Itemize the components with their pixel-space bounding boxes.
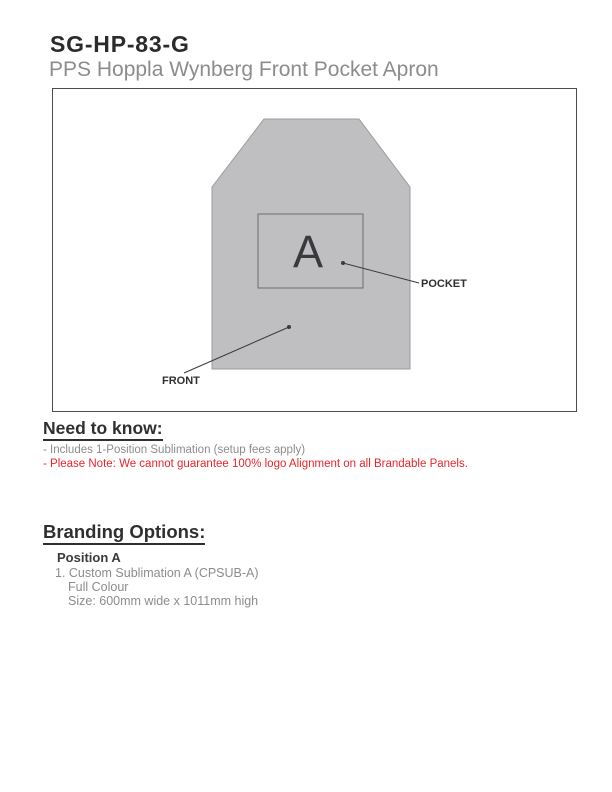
position-a-marker: A xyxy=(293,226,323,277)
need-to-know-item: - Includes 1-Position Sublimation (setup… xyxy=(43,444,468,458)
branding-colour-line: Full Colour xyxy=(68,580,259,594)
branding-options-heading: Branding Options: xyxy=(43,523,205,545)
product-diagram-panel: A POCKET FRONT xyxy=(52,88,577,412)
product-code-title: SG-HP-83-G xyxy=(50,33,190,56)
branding-method-line: 1. Custom Sublimation A (CPSUB-A) xyxy=(55,566,259,580)
apron-diagram: A POCKET FRONT xyxy=(53,89,575,410)
need-to-know-item-warning: - Please Note: We cannot guarantee 100% … xyxy=(43,458,468,472)
document-page: SG-HP-83-G PPS Hoppla Wynberg Front Pock… xyxy=(0,0,612,792)
need-to-know-heading: Need to know: xyxy=(43,420,163,441)
product-name-subtitle: PPS Hoppla Wynberg Front Pocket Apron xyxy=(49,59,439,80)
branding-size-line: Size: 600mm wide x 1011mm high xyxy=(68,594,259,608)
need-to-know-list: - Includes 1-Position Sublimation (setup… xyxy=(43,444,468,471)
position-a-title: Position A xyxy=(57,551,121,564)
front-label: FRONT xyxy=(162,375,200,387)
pocket-label: POCKET xyxy=(421,278,467,290)
position-a-details: 1. Custom Sublimation A (CPSUB-A) Full C… xyxy=(55,566,259,608)
